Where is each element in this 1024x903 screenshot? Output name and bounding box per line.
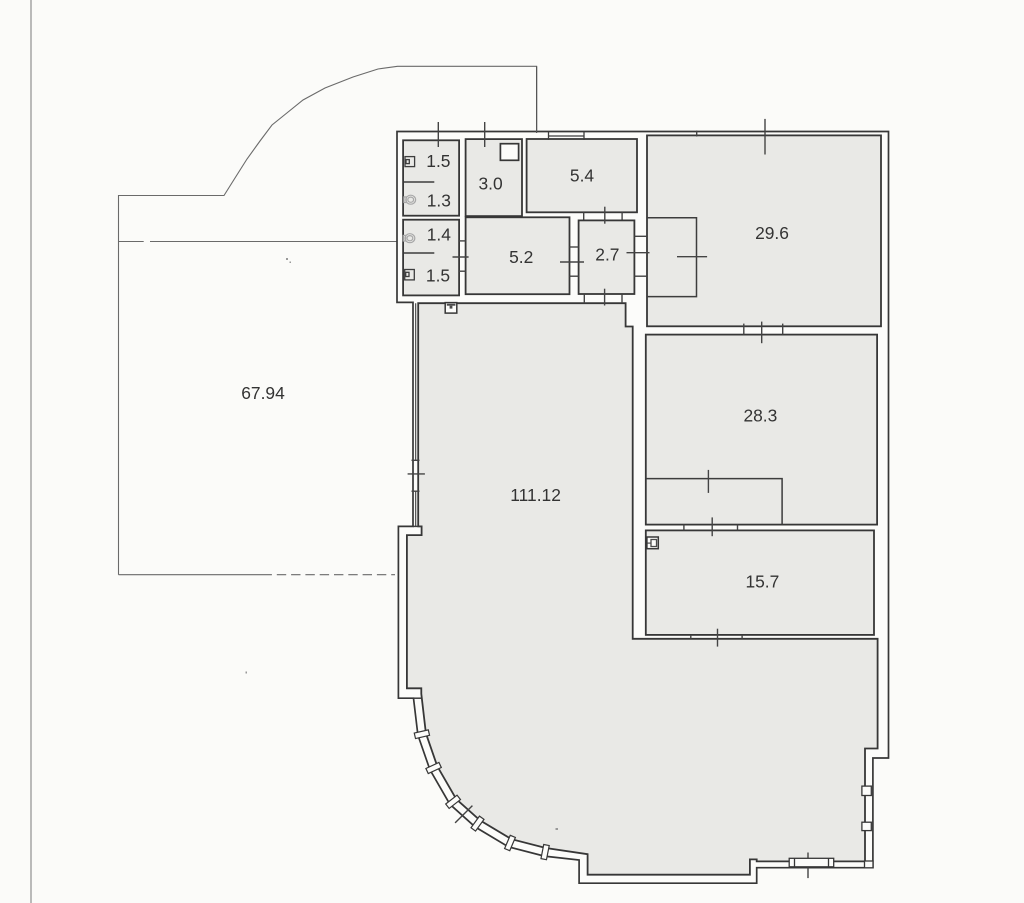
svg-text:28.3: 28.3 bbox=[743, 406, 777, 426]
svg-text:1.5: 1.5 bbox=[426, 151, 450, 171]
svg-text:67.94: 67.94 bbox=[241, 383, 285, 403]
svg-text:2.7: 2.7 bbox=[595, 245, 619, 265]
svg-text:15.7: 15.7 bbox=[745, 571, 779, 591]
svg-text:1.5: 1.5 bbox=[426, 266, 450, 286]
svg-text:1.4: 1.4 bbox=[427, 224, 452, 244]
svg-text:1.3: 1.3 bbox=[427, 190, 451, 210]
svg-text:3.0: 3.0 bbox=[479, 173, 503, 193]
svg-text:5.2: 5.2 bbox=[509, 247, 533, 267]
svg-text:29.6: 29.6 bbox=[755, 223, 789, 243]
svg-text:5.4: 5.4 bbox=[570, 166, 595, 186]
svg-text:111.12: 111.12 bbox=[510, 485, 561, 505]
